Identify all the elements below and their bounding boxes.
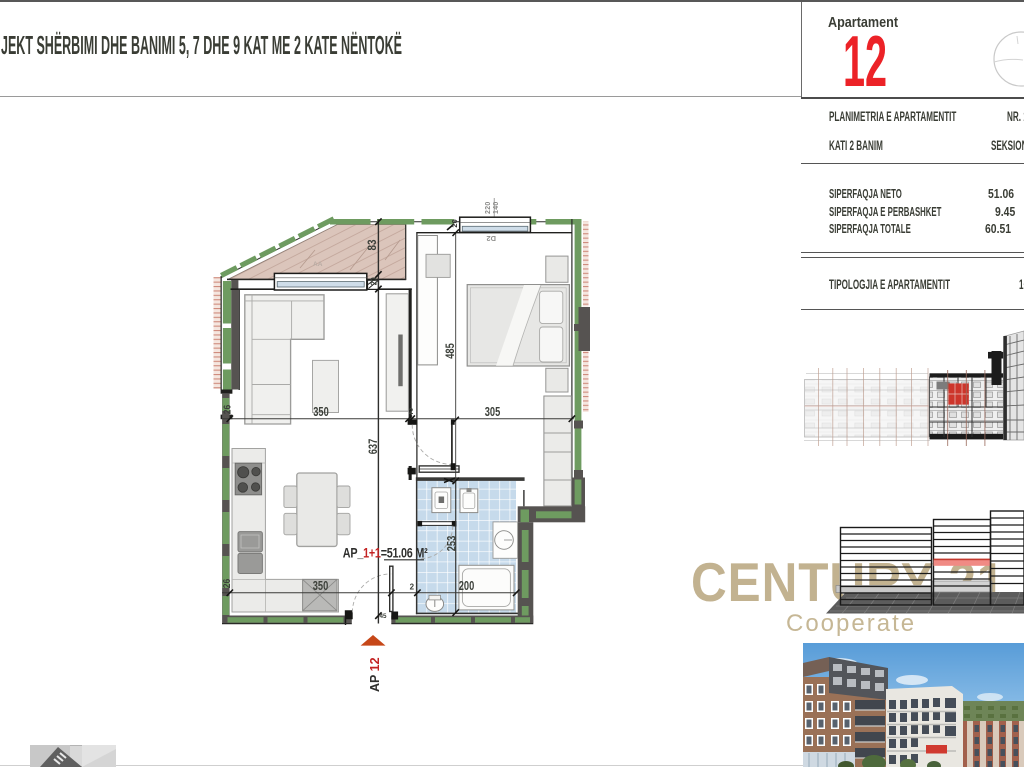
svg-text:26: 26 <box>222 578 233 588</box>
svg-text:20: 20 <box>369 277 379 285</box>
svg-text:AP 12: AP 12 <box>368 657 382 692</box>
svg-text:350: 350 <box>313 405 329 419</box>
svg-text:305: 305 <box>485 405 501 419</box>
svg-text:140: 140 <box>493 201 500 214</box>
svg-text:AP_1+1=51.06 M²: AP_1+1=51.06 M² <box>343 545 428 560</box>
svg-text:2: 2 <box>410 583 415 592</box>
svg-text:2: 2 <box>409 407 414 416</box>
svg-text:20: 20 <box>450 219 459 227</box>
svg-text:485: 485 <box>443 343 457 359</box>
svg-text:253: 253 <box>445 536 459 552</box>
svg-text:45: 45 <box>380 613 387 620</box>
svg-text:220: 220 <box>485 201 492 214</box>
svg-text:83: 83 <box>367 240 379 251</box>
svg-text:AA: AA <box>313 261 323 268</box>
svg-text:350: 350 <box>313 579 329 593</box>
svg-text:637: 637 <box>366 439 380 455</box>
svg-text:D2: D2 <box>486 234 496 243</box>
svg-text:200: 200 <box>459 579 475 593</box>
svg-text:26: 26 <box>223 404 234 414</box>
